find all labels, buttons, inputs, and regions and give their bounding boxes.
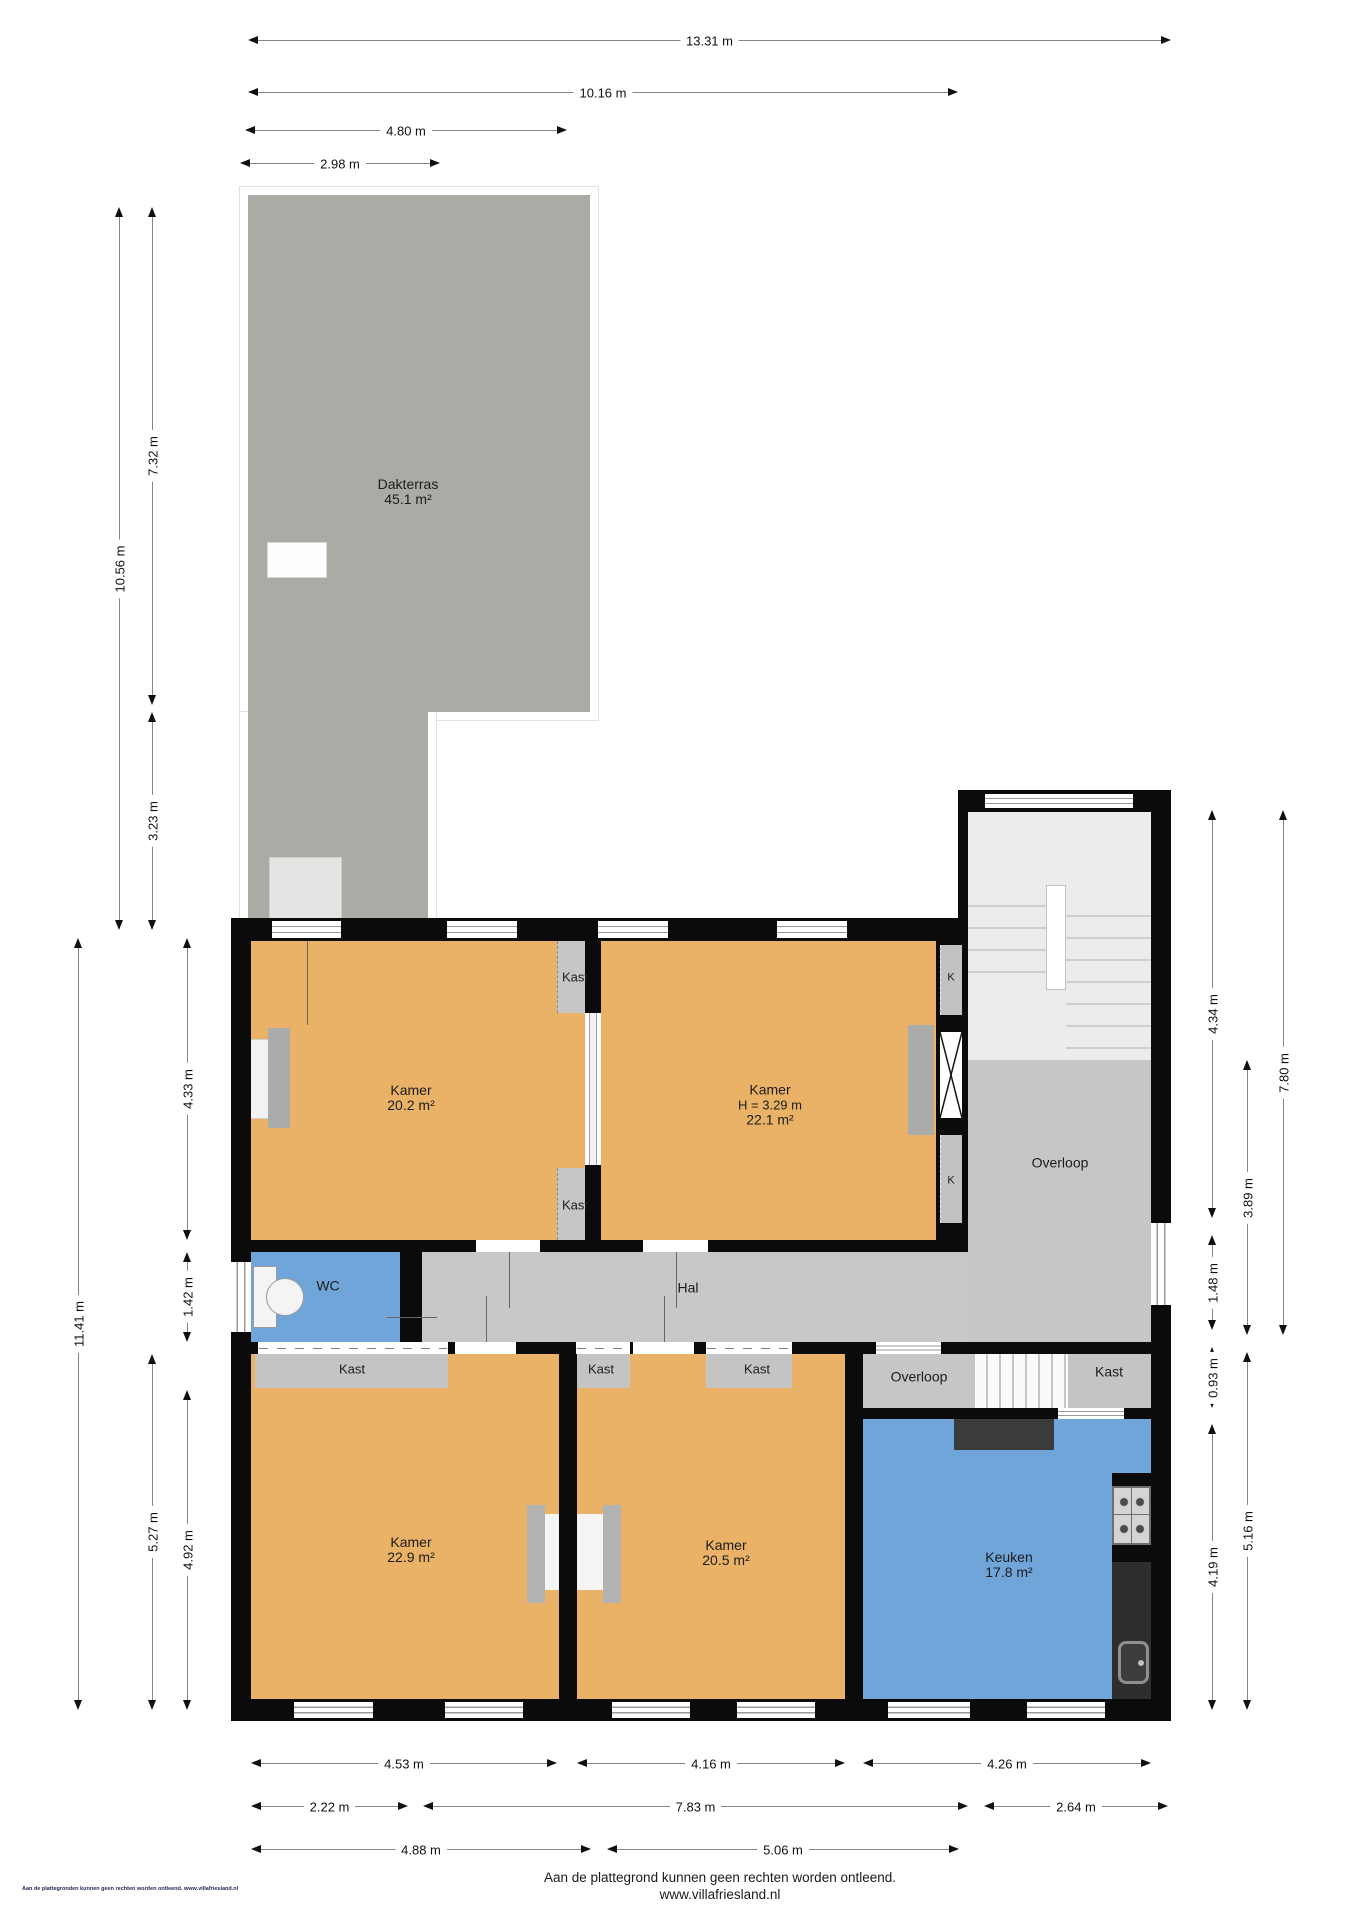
closet-bottom-right — [1068, 1354, 1151, 1408]
door-leaf-terrace — [307, 941, 308, 1025]
dim-bottom-4-53: 4.53 m — [251, 1759, 557, 1768]
wall-keuken-left — [845, 1342, 863, 1699]
dim-top-4-80: 4.80 m — [245, 126, 567, 135]
wall-wc-right — [400, 1252, 422, 1342]
closet-front-bm2 — [706, 1342, 792, 1354]
dim-bottom-7-83: 7.83 m — [423, 1802, 968, 1811]
door-leaf-wc — [387, 1317, 437, 1318]
room-label-kamer-bl: Kamer 22.9 m² — [387, 1535, 434, 1565]
room-label-kamer-tr: Kamer H = 3.29 m 22.1 m² — [738, 1083, 802, 1128]
window-bottom-5 — [888, 1702, 970, 1718]
stairs-down — [975, 1354, 1068, 1408]
footer-line-1: Aan de plattegrond kunnen geen rechten w… — [400, 1869, 1040, 1886]
dim-top-13-31: 13.31 m — [248, 36, 1171, 45]
window-overloop-right — [1151, 1223, 1171, 1305]
closet-label-k-upper: K — [947, 971, 954, 986]
wall-hal-top — [251, 1240, 958, 1252]
dim-top-10-16: 10.16 m — [248, 88, 958, 97]
room-hal — [422, 1252, 968, 1342]
dim-left-4-92: 4.92 m — [183, 1390, 192, 1710]
dim-left-4-33: 4.33 m — [183, 938, 192, 1240]
dim-left-11-41: 11.41 m — [74, 938, 83, 1710]
cabinet-left-inner — [545, 1514, 559, 1590]
door-leaf-bm — [664, 1296, 665, 1342]
sink — [1115, 1638, 1149, 1685]
terrace-door — [272, 921, 341, 938]
door-opening-hal-to-bm — [633, 1342, 694, 1354]
terrace-tiles-wide — [248, 195, 590, 712]
wall-patch-overloop — [958, 1240, 968, 1252]
dim-right-1-48: 1.48 m — [1208, 1235, 1217, 1330]
window-top-2 — [598, 921, 668, 938]
dim-left-10-56: 10.56 m — [115, 207, 124, 930]
door-opening-hal-to-tr — [643, 1240, 708, 1252]
toilet-bowl — [266, 1278, 304, 1316]
dim-left-5-27: 5.27 m — [148, 1354, 157, 1710]
room-label-dakterras: Dakterras 45.1 m² — [378, 477, 439, 507]
closet-front-bl — [258, 1342, 448, 1354]
dim-left-1-42: 1.42 m — [183, 1252, 192, 1342]
sink-basin — [1118, 1641, 1149, 1684]
dim-right-7-80: 7.80 m — [1279, 810, 1288, 1335]
closet-label-bm2: Kast — [744, 1362, 770, 1377]
footer-disclaimer: Aan de plattegrond kunnen geen rechten w… — [400, 1869, 1040, 1903]
wall-stub-stove-top — [1112, 1473, 1151, 1486]
window-hal-overloop — [876, 1342, 941, 1354]
dim-left-7-32: 7.32 m — [148, 207, 157, 705]
dim-left-3-23: 3.23 m — [148, 712, 157, 930]
dim-bottom-4-26: 4.26 m — [863, 1759, 1151, 1768]
stairs-flight-right — [1066, 895, 1151, 1060]
wall-between-bottom-rooms — [559, 1354, 577, 1699]
closet-label-k-lower: K — [947, 1174, 954, 1189]
radiator-top-left-room — [268, 1028, 290, 1128]
room-label-keuken: Keuken 17.8 m² — [985, 1550, 1032, 1580]
closet-label-bl: Kast — [339, 1362, 365, 1377]
floor-plan: Dakterras 45.1 m² — [0, 0, 1358, 1920]
window-stairwell — [985, 794, 1133, 808]
room-label-overloop-bottom: Overloop — [891, 1370, 948, 1385]
door-leaf-tl — [509, 1252, 510, 1308]
wall-stairwell-left — [958, 790, 968, 942]
window-bottom-4 — [737, 1702, 815, 1718]
cabinet-right-panel — [603, 1505, 621, 1603]
wall-landing-top-a — [863, 1342, 876, 1354]
window-bottom-6 — [1027, 1702, 1105, 1718]
window-top-3 — [777, 921, 847, 938]
window-bottom-3 — [612, 1702, 690, 1718]
closet-label-br: Kast — [1095, 1365, 1123, 1380]
shaft-x — [940, 1028, 962, 1122]
dim-right-3-89: 3.89 m — [1243, 1060, 1252, 1335]
window-bottom-1 — [294, 1702, 373, 1718]
room-label-kamer-tl: Kamer 20.2 m² — [387, 1083, 434, 1113]
corner-disclaimer: Aan de plattegronden kunnen geen rechten… — [22, 1886, 238, 1892]
dim-bottom-4-88: 4.88 m — [251, 1845, 591, 1854]
wall-landing-top-b — [941, 1342, 1151, 1354]
door-opening-hal-to-bl — [455, 1342, 516, 1354]
dim-bottom-2-64: 2.64 m — [984, 1802, 1168, 1811]
window-bottom-2 — [445, 1702, 523, 1718]
radiator-top-right-room — [908, 1025, 934, 1135]
room-label-wc: WC — [316, 1279, 339, 1294]
window-top-1 — [447, 921, 517, 938]
cabinet-left-panel — [527, 1505, 545, 1603]
kitchen-counter-top — [954, 1419, 1054, 1450]
dim-right-0-93: 0.93 m — [1208, 1347, 1217, 1408]
terrace-hatch — [268, 543, 326, 577]
closet-label-bm1: Kast — [588, 1362, 614, 1377]
room-label-kamer-bm: Kamer 20.5 m² — [702, 1538, 749, 1568]
stove — [1112, 1486, 1151, 1545]
stairs-gap — [1046, 885, 1066, 990]
closet-label-top-lower: Kast — [562, 1198, 588, 1213]
footer-line-2: www.villafriesland.nl — [400, 1886, 1040, 1903]
room-label-overloop-top: Overloop — [1032, 1156, 1089, 1171]
wall-stub-stove-bottom — [1112, 1545, 1151, 1562]
dim-right-4-34: 4.34 m — [1208, 810, 1217, 1218]
dim-bottom-4-16: 4.16 m — [577, 1759, 845, 1768]
stairs-flight-left — [968, 885, 1046, 990]
window-landing-keuken — [1058, 1408, 1124, 1419]
room-kamer-bottom-left — [251, 1354, 559, 1699]
dim-bottom-5-06: 5.06 m — [607, 1845, 959, 1854]
closet-label-top-upper: Kast — [562, 970, 588, 985]
dim-right-5-16: 5.16 m — [1243, 1352, 1252, 1710]
dim-right-4-19: 4.19 m — [1208, 1424, 1217, 1710]
closet-front-bm1 — [576, 1342, 630, 1354]
door-leaf-bl — [486, 1296, 487, 1342]
sliding-door-top-rooms — [585, 1013, 601, 1165]
cabinet-right-inner — [577, 1514, 603, 1590]
door-opening-hal-to-tl — [476, 1240, 540, 1252]
window-wc — [231, 1262, 251, 1332]
dim-top-2-98: 2.98 m — [240, 159, 440, 168]
room-label-hal: Hal — [677, 1281, 698, 1296]
terrace-door-landing — [270, 858, 341, 920]
dim-bottom-2-22: 2.22 m — [251, 1802, 408, 1811]
room-overloop-top — [968, 1060, 1151, 1342]
